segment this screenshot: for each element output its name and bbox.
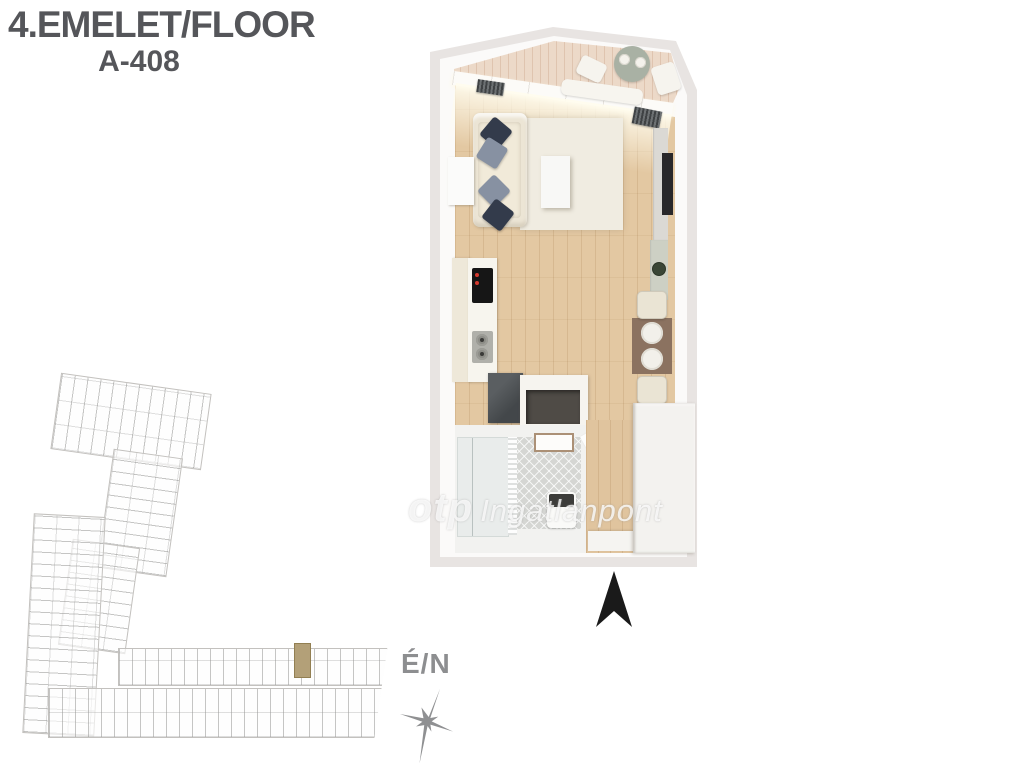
cooktop xyxy=(472,268,493,303)
coffee-table xyxy=(541,156,570,208)
building-wing xyxy=(48,688,390,738)
unit-number-label: A-408 xyxy=(8,45,270,79)
building-wing-bottom xyxy=(48,643,388,738)
compass-label: É/N xyxy=(401,648,451,680)
cooktop-indicator xyxy=(475,281,479,285)
wall-column xyxy=(448,157,474,205)
plate-icon xyxy=(641,348,663,370)
watermark-brand: otp xyxy=(408,486,473,530)
compass-rose-icon xyxy=(385,684,470,768)
building-wing xyxy=(118,648,388,686)
highlighted-unit-a408 xyxy=(294,643,311,678)
floorplan-page: 4.EMELET/FLOOR A-408 xyxy=(0,0,1024,768)
watermark-text: Ingatlanpont xyxy=(480,493,663,528)
north-arrow-icon xyxy=(596,571,632,629)
niche-opening xyxy=(526,390,580,424)
sofa xyxy=(473,113,527,227)
appliance-box xyxy=(488,373,523,423)
cooktop-indicator xyxy=(475,273,479,277)
entry-mat xyxy=(588,531,638,551)
sink-basin xyxy=(476,334,488,346)
cup-icon xyxy=(635,57,646,68)
page-title: 4.EMELET/FLOOR A-408 xyxy=(8,6,270,79)
plant-icon xyxy=(653,263,665,275)
watermark: otpIngatlanpont xyxy=(408,486,708,531)
plate-icon xyxy=(641,322,663,344)
dining-chair xyxy=(637,291,667,319)
building-overview-schematic xyxy=(20,375,376,757)
tv xyxy=(662,153,673,215)
balcony-round-table xyxy=(614,46,650,82)
floor-label: 4.EMELET/FLOOR xyxy=(8,6,270,45)
kitchen-sink xyxy=(472,331,493,363)
sink-basin xyxy=(476,348,488,360)
cup-icon xyxy=(619,54,630,65)
dining-chair xyxy=(637,376,667,404)
bathroom-vanity xyxy=(534,433,574,452)
area-rug xyxy=(520,118,623,230)
